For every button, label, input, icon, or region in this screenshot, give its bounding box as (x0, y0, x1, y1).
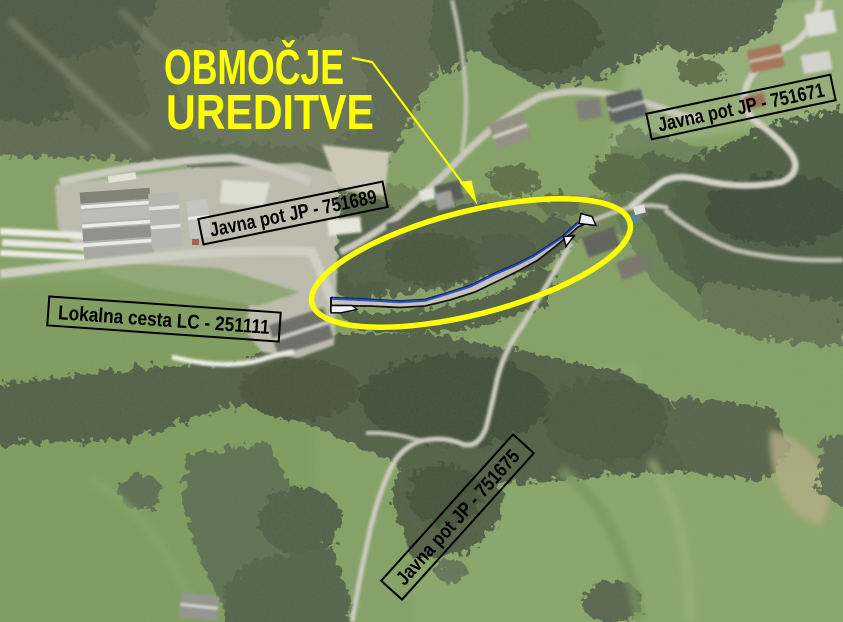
svg-text:UREDITVE: UREDITVE (166, 86, 374, 140)
